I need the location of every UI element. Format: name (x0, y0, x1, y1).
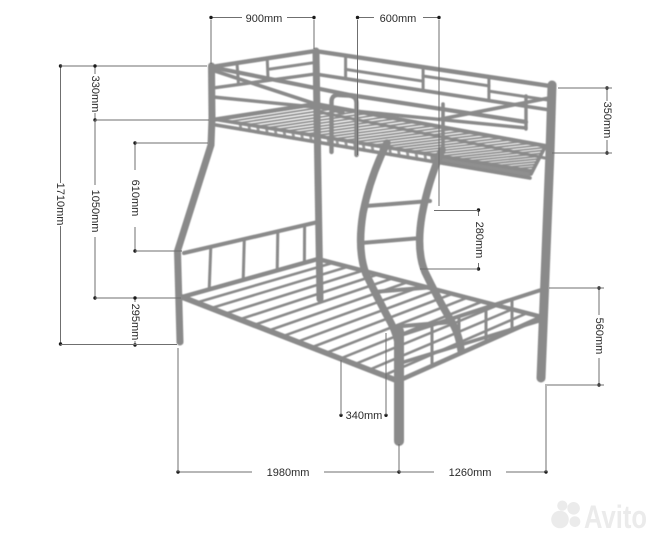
svg-text:560mm: 560mm (593, 318, 605, 355)
svg-text:340mm: 340mm (346, 410, 383, 422)
svg-text:1710mm: 1710mm (54, 183, 66, 226)
svg-text:350mm: 350mm (601, 102, 613, 139)
svg-text:295mm: 295mm (129, 304, 141, 341)
svg-text:1260mm: 1260mm (449, 467, 492, 479)
svg-text:330mm: 330mm (89, 76, 101, 113)
svg-text:600mm: 600mm (380, 13, 417, 25)
svg-text:610mm: 610mm (129, 180, 141, 217)
svg-text:280mm: 280mm (473, 222, 485, 259)
svg-text:1050mm: 1050mm (89, 190, 101, 233)
svg-text:900mm: 900mm (246, 13, 283, 25)
svg-text:1980mm: 1980mm (267, 467, 310, 479)
svg-text:Avito: Avito (584, 499, 647, 535)
